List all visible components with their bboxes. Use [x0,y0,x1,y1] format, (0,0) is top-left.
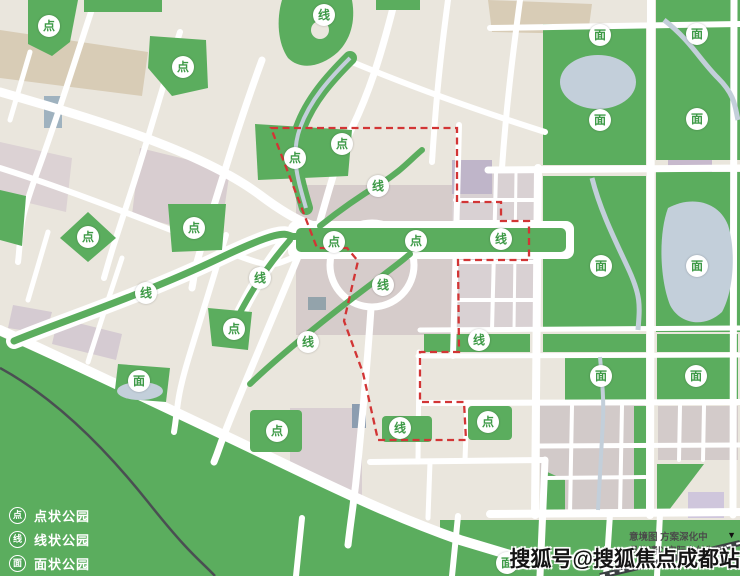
park-badge-line: 线 [389,417,411,439]
park-badge-area: 面 [686,255,708,277]
park-badge-area: 面 [590,365,612,387]
park-badge-dot: 点 [172,56,194,78]
legend: 点点状公园线线状公园面面状公园 [9,506,90,573]
park-badge-area: 面 [590,255,612,277]
legend-badge-icon: 点 [9,507,26,524]
park-badge-area: 面 [589,109,611,131]
park-badge-line: 线 [468,329,490,351]
park-badge-dot: 点 [266,420,288,442]
park-badge-line: 线 [135,282,157,304]
watermark: 搜狐号@搜狐焦点成都站 [510,543,740,573]
legend-label: 线状公园 [34,530,90,549]
park-badge-area: 面 [685,365,707,387]
park-badge-dot: 点 [38,15,60,37]
park-badge-dot: 点 [77,226,99,248]
park-badge-dot: 点 [223,318,245,340]
park-badge-dot: 点 [183,217,205,239]
park-badge-area: 面 [686,23,708,45]
park-badge-line: 线 [297,331,319,353]
park-badge-dot: 点 [284,147,306,169]
park-badge-area: 面 [686,108,708,130]
legend-item-1: 线线状公园 [9,530,90,549]
park-badge-line: 线 [372,274,394,296]
map-canvas [0,0,740,576]
park-badge-area: 面 [589,24,611,46]
legend-item-2: 面面状公园 [9,554,90,573]
legend-badge-icon: 面 [9,555,26,572]
legend-label: 面状公园 [34,554,90,573]
park-badge-dot: 点 [477,411,499,433]
park-badge-dot: 点 [323,231,345,253]
park-badge-line: 线 [249,267,271,289]
park-badge-line: 线 [313,4,335,26]
park-badge-line: 线 [367,175,389,197]
down-triangle-icon: ▼ [727,531,736,540]
legend-badge-icon: 线 [9,531,26,548]
park-badge-dot: 点 [405,230,427,252]
park-badge-dot: 点 [331,133,353,155]
planning-map: 点点点点点点点点点点点线线线线线线线线线面面面面面面面面面面 点点状公园线线状公… [0,0,740,576]
legend-label: 点状公园 [34,506,90,525]
legend-item-0: 点点状公园 [9,506,90,525]
park-badge-area: 面 [128,370,150,392]
park-badge-line: 线 [490,228,512,250]
